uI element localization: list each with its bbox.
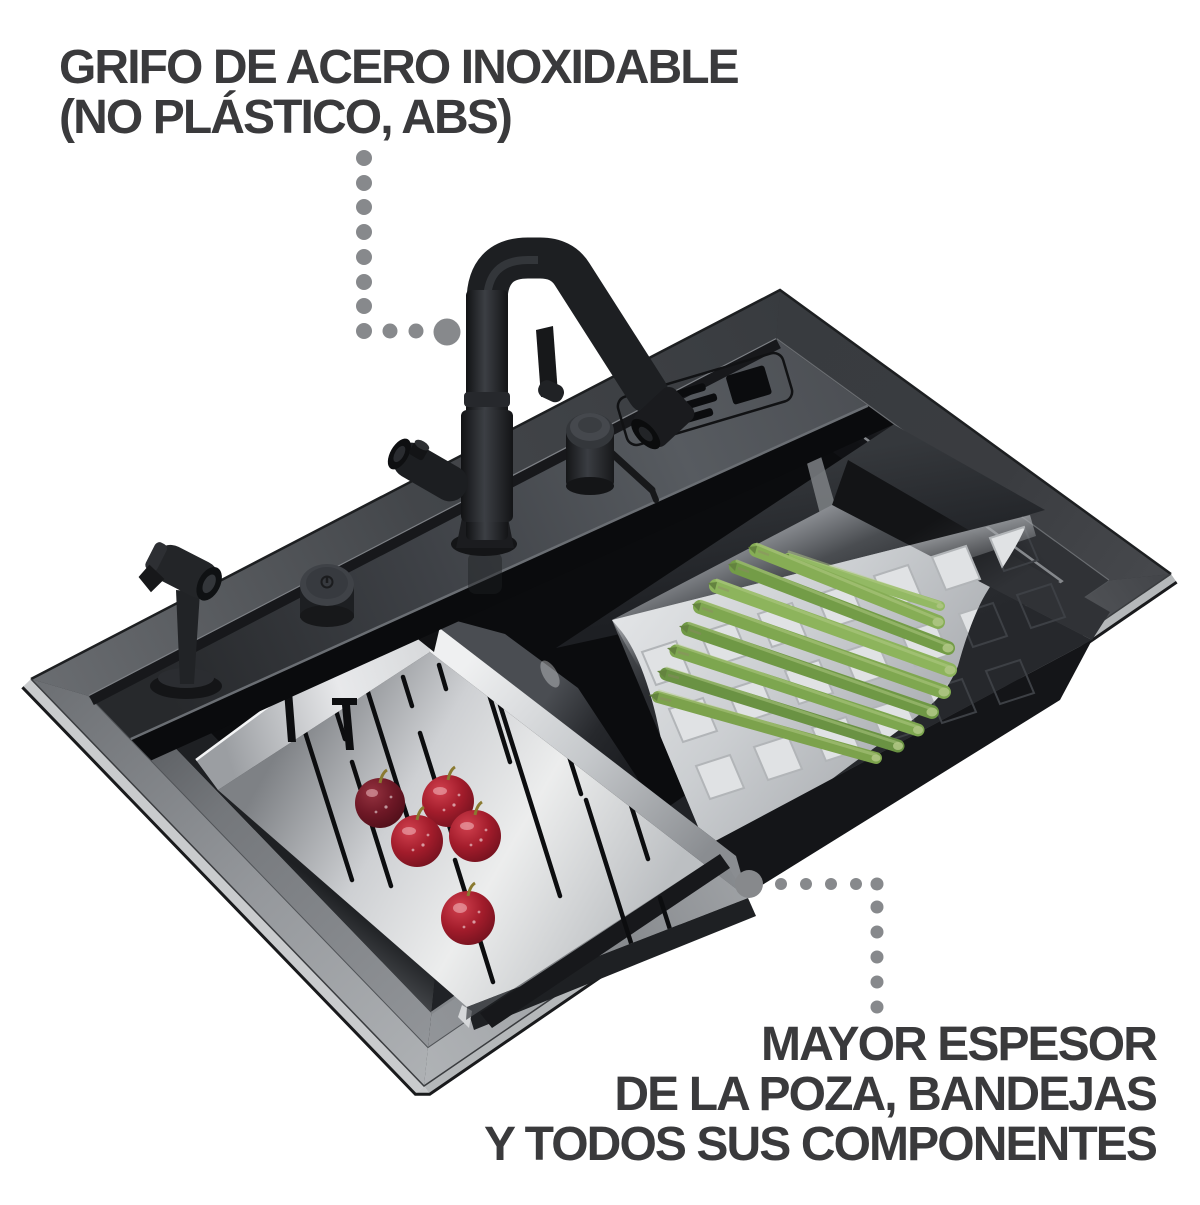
svg-text:Y TODOS SUS COMPONENTES: Y TODOS SUS COMPONENTES	[484, 1118, 1157, 1171]
svg-text:MAYOR ESPESOR: MAYOR ESPESOR	[761, 1018, 1157, 1071]
svg-text:DE LA POZA, BANDEJAS: DE LA POZA, BANDEJAS	[614, 1068, 1156, 1121]
svg-text:(NO PLÁSTICO, ABS): (NO PLÁSTICO, ABS)	[59, 90, 511, 144]
svg-text:GRIFO DE ACERO INOXIDABLE: GRIFO DE ACERO INOXIDABLE	[59, 41, 739, 94]
